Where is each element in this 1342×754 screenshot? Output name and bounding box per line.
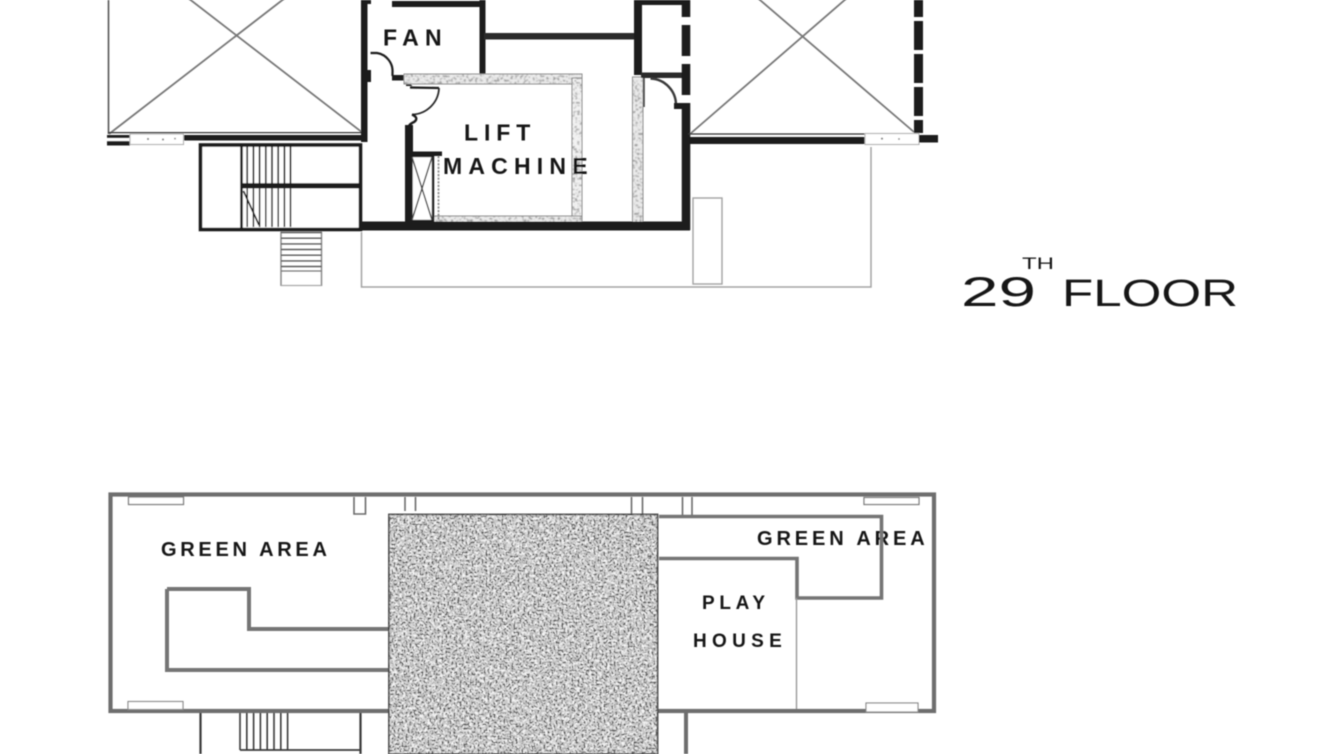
svg-text:FAN: FAN xyxy=(383,25,448,51)
svg-text:GREEN AREA: GREEN AREA xyxy=(757,528,929,550)
svg-text:TH: TH xyxy=(1022,254,1054,273)
svg-text:LIFT: LIFT xyxy=(464,120,536,146)
svg-text:29: 29 xyxy=(961,268,1036,315)
svg-text:HOUSE: HOUSE xyxy=(693,631,787,652)
svg-text:GREEN AREA: GREEN AREA xyxy=(161,539,331,561)
svg-text:MACHINE: MACHINE xyxy=(443,153,594,179)
svg-text:PLAY: PLAY xyxy=(702,593,770,614)
svg-text:FLOOR: FLOOR xyxy=(1062,273,1238,315)
